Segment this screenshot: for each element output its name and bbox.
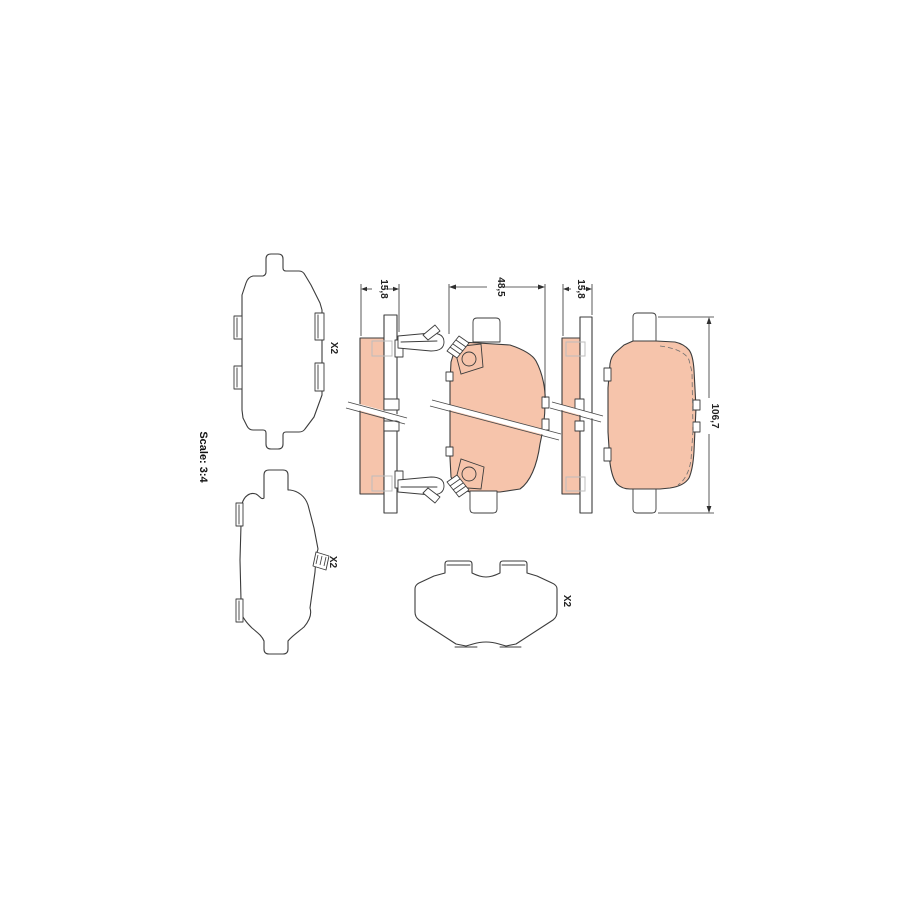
shim-left-bracket: [236, 599, 243, 622]
pad-back-view: 106,7: [604, 313, 720, 513]
shim-top-left: X2: [234, 254, 339, 449]
friction-material-side-right: [562, 338, 580, 494]
spring-clip-top: [395, 325, 444, 357]
pad-back-bottom-tab: [633, 489, 656, 513]
abutment-lug-right-side: [575, 421, 584, 431]
friction-material-back: [608, 341, 696, 489]
pad-left-step: [446, 372, 453, 381]
pad-back-top-tab: [633, 313, 656, 341]
pad-assembly-side-view: 15,8: [346, 279, 444, 513]
pad-side-view-right: 15,8: [550, 279, 603, 513]
abutment-lug-side: [384, 399, 399, 410]
brake-pad-diagram: X2 X2 X2: [0, 0, 915, 915]
dim-thickness-right-label: 15,8: [575, 279, 586, 299]
abutment-lug-side: [384, 421, 399, 431]
scale-label: Scale: 3:4: [197, 431, 209, 483]
dim-length-back-label: 106,7: [709, 403, 720, 428]
shim-bottom-left-qty-label: X2: [327, 556, 338, 569]
pad-top-tab: [473, 318, 500, 342]
shim-left-bracket: [236, 503, 243, 526]
dim-width-front-label: 48,5: [495, 277, 506, 297]
pad-left-step: [446, 447, 453, 456]
pad-back-left-lug: [604, 448, 611, 461]
shim-right-bracket: [315, 363, 324, 391]
shim-bottom-center-qty-label: X2: [561, 595, 572, 608]
technical-drawing: X2 X2 X2: [0, 0, 915, 915]
pad-bottom-tab: [470, 491, 497, 513]
shim-bottom-center-outline: [415, 561, 557, 646]
dim-thickness-mid-label: 15,8: [378, 279, 389, 299]
shim-bottom-left: X2: [236, 470, 338, 654]
pad-back-right-lug: [693, 422, 700, 432]
shim-left-tab: [234, 366, 242, 389]
abutment-lug-front: [542, 419, 549, 430]
shim-top-left-outline: [242, 254, 322, 449]
shim-bottom-left-outline: [240, 470, 318, 654]
abutment-lug-front: [542, 397, 549, 408]
pad-back-right-lug: [693, 400, 700, 410]
shim-right-bracket: [315, 313, 324, 340]
pad-front-view: 48,5: [430, 277, 561, 513]
shim-bottom-center: X2: [415, 561, 572, 647]
spring-clip-bottom: [395, 471, 444, 503]
shim-top-left-qty-label: X2: [328, 342, 339, 355]
shim-left-tab: [234, 316, 242, 339]
pad-back-left-lug: [604, 368, 611, 381]
